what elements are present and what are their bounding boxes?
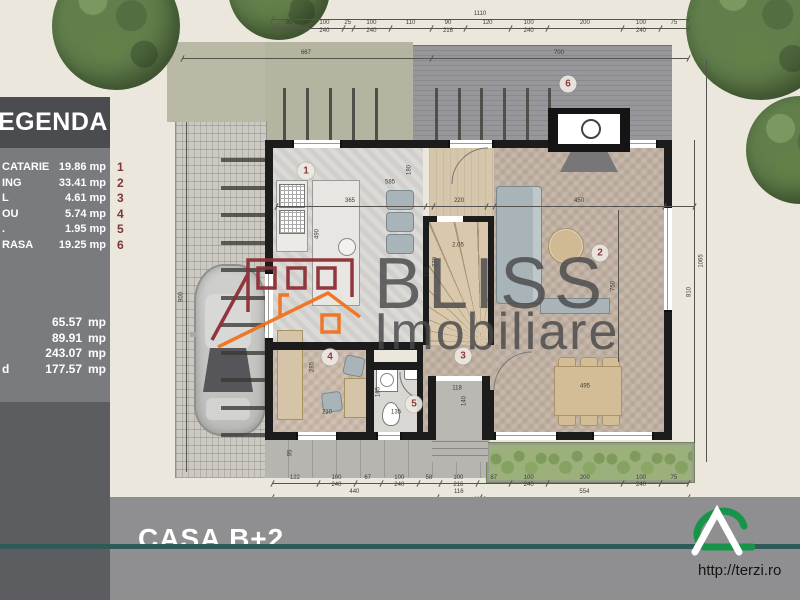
dimension-label: 554	[579, 489, 589, 496]
dimension-label: 2.05	[452, 243, 464, 250]
dimension-label: 135	[391, 410, 401, 417]
dimension-label: 165	[376, 387, 383, 397]
legend-item-value: 4.61 mp	[65, 192, 106, 204]
dimension-label: 58	[425, 475, 432, 482]
legend-total: 243.07 mp	[0, 345, 110, 360]
dimension-label: 216	[453, 482, 463, 489]
legend-item-label: ING	[2, 177, 22, 189]
dimension-label: 120	[482, 20, 492, 27]
dimension-label: 95	[288, 450, 295, 457]
legend-title-block: EGENDA	[0, 97, 110, 148]
legend-item-label: .	[2, 223, 5, 235]
legend-item: CATARIE19.86 mp	[0, 160, 110, 175]
dimension-label: 100	[331, 475, 341, 482]
legend-total: d177.57 mp	[0, 361, 110, 376]
dimension-label: 100	[636, 475, 646, 482]
dimension-label: 200	[580, 20, 590, 27]
legend-title: EGENDA	[0, 108, 108, 137]
legend-item-label: OU	[2, 208, 19, 220]
dimension-label: 240	[331, 482, 341, 489]
dimension-label: 122	[290, 475, 300, 482]
dimension-label: 67	[364, 475, 371, 482]
legend-panel: EGENDA CATARIE19.86 mpING33.41 mpL4.61 m…	[0, 97, 110, 600]
dimension-label: 100	[524, 475, 534, 482]
dimension-label: 100	[394, 475, 404, 482]
legend-item-number: 2	[117, 176, 131, 190]
legend-item-number: 1	[117, 160, 131, 174]
dimension-label: 100	[319, 20, 329, 27]
room-badge-6: 6	[560, 76, 577, 93]
dimension-label: 100	[524, 20, 534, 27]
dimension-label: 365	[345, 198, 355, 205]
dimension-label: 810	[687, 286, 694, 296]
legend-item-number: 6	[117, 238, 131, 252]
legend-total-value: 177.57 mp	[45, 362, 106, 376]
legend-item: ING33.41 mp	[0, 176, 110, 191]
floor-plan-slide: { "legend": { "title": "EGENDA", "items"…	[0, 0, 800, 600]
website-url: http://terzi.ro	[698, 562, 781, 579]
dimension-label: 240	[394, 482, 404, 489]
dimension-line	[706, 60, 707, 462]
legend-item-number: 4	[117, 207, 131, 221]
legend-item-value: 33.41 mp	[59, 177, 106, 189]
dimension-label: 450	[574, 198, 584, 205]
dimension-label: 90	[286, 20, 293, 27]
dimension-chain: 1110	[272, 12, 688, 21]
dimension-label: 585	[385, 180, 395, 187]
dimension-label: 25	[344, 20, 351, 27]
room-badge-4: 4	[322, 349, 339, 366]
legend-item: OU5.74 mp	[0, 207, 110, 222]
legend-item-value: 19.25 mp	[59, 239, 106, 251]
dimension-line	[618, 210, 619, 362]
legend-total-value: 89.91 mp	[52, 331, 106, 345]
legend-item-value: 1.95 mp	[65, 223, 106, 235]
dimension-label: 240	[636, 28, 646, 35]
dimension-label: 270	[433, 257, 440, 267]
dimension-label: 210	[322, 410, 332, 417]
legend-item-label: RASA	[2, 239, 33, 251]
dimension-label: 285	[310, 362, 317, 372]
legend-total: 65.57 mp	[0, 314, 110, 329]
dimension-label: 240	[366, 28, 376, 35]
dimension-label: 216	[443, 28, 453, 35]
dimension-label: 100	[636, 20, 646, 27]
room-badge-5: 5	[406, 396, 423, 413]
legend-items: CATARIE19.86 mpING33.41 mpL4.61 mpOU5.74…	[0, 148, 110, 402]
dimension-label: 1110	[474, 11, 486, 18]
dimension-label: 240	[524, 482, 534, 489]
dimension-label: 75	[671, 20, 678, 27]
dimension-label: 200	[580, 475, 590, 482]
dimension-label: 1065	[699, 254, 706, 267]
legend-item: RASA19.25 mp	[0, 238, 110, 253]
legend-item-number: 3	[117, 191, 131, 205]
legend-item: .1.95 mp	[0, 222, 110, 237]
dimension-label: 440	[349, 489, 359, 496]
dimension-label: 87	[490, 475, 497, 482]
dimension-label: 220	[454, 198, 464, 205]
dimension-chain: 667700	[182, 51, 688, 60]
dimension-label: 180	[407, 165, 414, 175]
dimension-label: 100	[453, 475, 463, 482]
dimension-label: 140	[462, 396, 469, 406]
dimension-label: 240	[524, 28, 534, 35]
legend-item-label: L	[2, 192, 9, 204]
dimension-label: 75	[671, 475, 678, 482]
dimension-label: 116	[454, 489, 464, 496]
dimension-chain: 365220450	[276, 199, 694, 208]
legend-total: 89.91 mp	[0, 330, 110, 345]
dimension-line	[272, 19, 688, 20]
dimension-label: 118	[452, 386, 462, 393]
dimension-label: 110	[380, 341, 387, 351]
dimension-label: 900	[179, 292, 186, 302]
room-badge-1: 1	[298, 163, 315, 180]
dimension-label: 495	[580, 384, 590, 391]
dimension-chain: 240240216240240	[272, 29, 688, 38]
room-badge-3: 3	[455, 348, 472, 365]
dimension-label: 700	[554, 50, 564, 57]
legend-item-value: 19.86 mp	[59, 161, 106, 173]
dimension-label: 240	[319, 28, 329, 35]
dimension-line	[182, 58, 688, 59]
fireplace-flue-icon	[581, 119, 601, 139]
dimension-label: 240	[636, 482, 646, 489]
dimension-label: 90	[445, 20, 452, 27]
legend-total-value: 65.57 mp	[52, 315, 106, 329]
dimension-line	[186, 122, 187, 472]
dimension-label: 100	[366, 20, 376, 27]
legend-item-number: 5	[117, 222, 131, 236]
dimension-label: 210	[425, 267, 432, 277]
legend-item: L4.61 mp	[0, 191, 110, 206]
legend-item-value: 5.74 mp	[65, 208, 106, 220]
dimension-line	[694, 140, 695, 443]
terzi-logo-icon	[678, 504, 756, 556]
legend-item-label: CATARIE	[2, 161, 49, 173]
dimension-label: 490	[315, 229, 322, 239]
legend-total-label: d	[2, 362, 9, 376]
dimension-label: 110	[406, 20, 416, 27]
dimension-label: 750	[611, 281, 618, 291]
room-badge-2: 2	[592, 245, 609, 262]
legend-total-value: 243.07 mp	[45, 346, 106, 360]
dimension-label: 667	[301, 50, 311, 57]
